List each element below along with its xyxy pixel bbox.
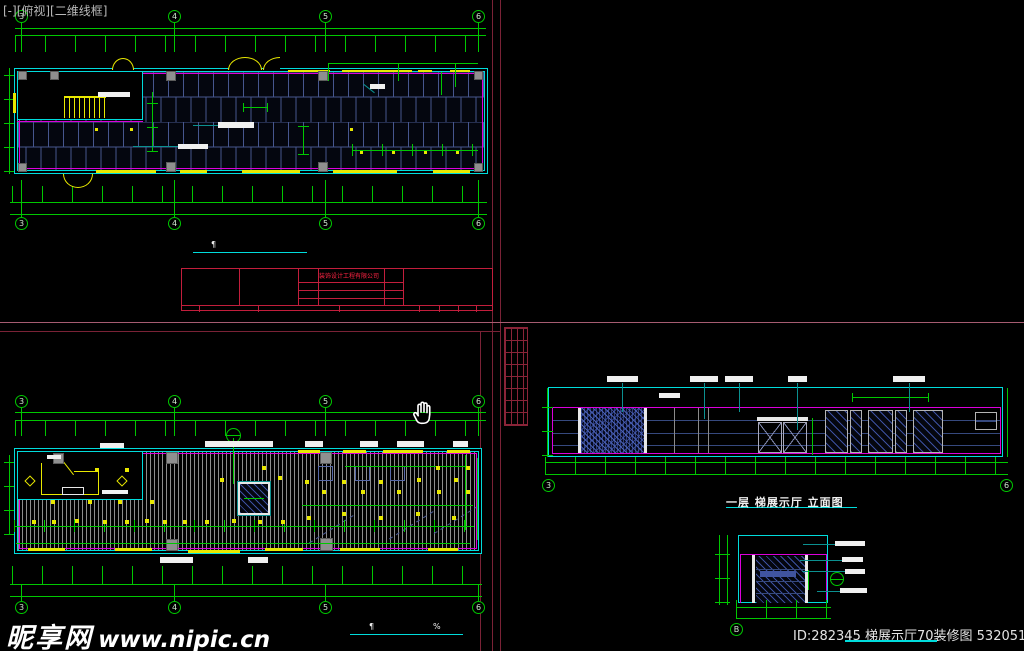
ceiling-light — [466, 466, 470, 470]
door-arc — [263, 57, 280, 70]
section-drawing — [738, 535, 828, 603]
dim — [10, 202, 487, 203]
ceiling-light — [163, 520, 167, 524]
grid-bubble: 5 — [319, 10, 332, 23]
sheet-border-vertical-2 — [500, 0, 501, 651]
ceiling-light — [75, 519, 79, 523]
ceiling-light — [232, 519, 236, 523]
ceiling-light — [281, 520, 285, 524]
fixture-dot — [360, 151, 363, 154]
storefront-strip — [265, 548, 303, 551]
index-line — [830, 579, 844, 580]
dim — [302, 505, 473, 506]
vent-fixture — [355, 466, 370, 481]
ceiling-light — [145, 519, 149, 523]
dim — [736, 618, 831, 619]
elevation-title: 一层 梯展示厅 立面图 — [726, 494, 844, 510]
fixture-dot — [95, 128, 98, 131]
dim — [16, 543, 470, 544]
dim — [398, 63, 399, 81]
storefront-strip — [450, 70, 470, 72]
glazed-door — [758, 422, 782, 453]
grid-bubble: 4 — [168, 601, 181, 614]
dim — [303, 126, 304, 154]
dim — [928, 393, 929, 402]
red-grid-structure — [504, 327, 528, 426]
panel-frame — [644, 408, 647, 453]
display-cabinet — [868, 410, 893, 453]
ceiling-light — [150, 500, 154, 504]
column — [166, 539, 178, 551]
dim — [852, 393, 853, 402]
storefront-strip — [340, 548, 380, 551]
storefront-strip — [383, 450, 423, 453]
dim — [455, 63, 456, 87]
column — [166, 71, 176, 81]
dim — [441, 72, 442, 95]
text-label-bar — [218, 122, 254, 128]
ceiling-light — [88, 500, 92, 504]
dim — [298, 154, 309, 155]
fixture-dot — [424, 151, 427, 154]
storefront-strip — [447, 450, 470, 453]
text-label-bar — [893, 376, 925, 382]
ceiling-light — [262, 466, 266, 470]
dim-ticks — [12, 566, 482, 584]
grid-bubble: 6 — [472, 395, 485, 408]
column — [50, 71, 59, 80]
elevation-grid-bubble-left: 3 — [542, 479, 555, 492]
grid-bubble: 5 — [319, 601, 332, 614]
column — [320, 452, 332, 464]
dim — [10, 584, 482, 585]
stair-symbol — [64, 96, 106, 118]
dim-ticks — [542, 390, 553, 456]
vent-fixture — [390, 466, 405, 481]
door-arc — [245, 57, 262, 70]
display-cabinet — [825, 410, 848, 453]
grid-bubble: 3 — [15, 601, 28, 614]
display-cabinet — [850, 410, 862, 453]
column — [474, 163, 483, 172]
display-cabinet — [895, 410, 907, 453]
title-block: 装饰设计工程有限公司 — [181, 268, 493, 311]
ceiling-light — [436, 466, 440, 470]
dim — [243, 107, 267, 108]
panel-frame — [578, 408, 581, 453]
panel-frame — [752, 555, 755, 603]
section-wall — [826, 554, 827, 603]
dim-ticks — [736, 600, 831, 618]
scale-mark: % — [433, 622, 441, 631]
storefront-strip — [333, 170, 397, 173]
storefront-strip — [418, 70, 432, 72]
dim — [477, 458, 478, 540]
ceiling-light — [322, 490, 326, 494]
scale-bar — [193, 252, 307, 253]
label-box — [62, 487, 84, 495]
dim-ticks — [14, 520, 474, 532]
storefront-strip — [180, 170, 207, 173]
ceiling-light — [220, 478, 224, 482]
text-label-bar — [305, 441, 323, 447]
panel-divider — [674, 408, 675, 453]
text-label-bar — [453, 441, 468, 447]
section-wall — [740, 554, 741, 603]
sheet-border-horizontal-2 — [0, 331, 501, 332]
dim — [812, 418, 813, 455]
ceiling-light — [118, 500, 122, 504]
leader-line — [133, 146, 179, 147]
dim — [10, 214, 487, 215]
text-label-bar — [788, 376, 807, 382]
plan-top-dim-ticks — [15, 35, 486, 52]
ceiling-light — [416, 512, 420, 516]
grid-bubble: 4 — [168, 217, 181, 230]
light-diamond — [116, 475, 127, 486]
dim — [545, 474, 1008, 475]
column — [318, 71, 328, 81]
grid-bubble: 5 — [319, 217, 332, 230]
dim — [267, 103, 268, 112]
text-label-bar — [370, 84, 385, 89]
ceiling-light — [342, 512, 346, 516]
id-underline — [845, 640, 937, 642]
window-strip-left — [13, 93, 16, 113]
ceiling-light — [205, 520, 209, 524]
text-label-bar — [160, 557, 193, 563]
site-watermark-name: 昵享网 — [6, 623, 93, 651]
datum-line — [226, 435, 241, 436]
ceiling-light — [417, 478, 421, 482]
column — [18, 163, 27, 172]
title-block-company: 装饰设计工程有限公司 — [319, 271, 383, 280]
text-label-bar — [397, 441, 424, 447]
panel-divider — [708, 408, 709, 453]
text-label-bar — [102, 490, 128, 494]
dim-ticks — [352, 144, 478, 156]
ceiling-light — [397, 490, 401, 494]
fixture-dot — [350, 128, 353, 131]
ceiling-light — [32, 520, 36, 524]
text-label-bar — [659, 393, 680, 398]
pan-hand-cursor — [408, 397, 438, 427]
stair-rail — [64, 96, 65, 118]
viewport-controls[interactable]: [-][俯视][二维线框] — [3, 2, 107, 19]
section-grid-bubble: B — [730, 623, 743, 636]
text-label-bar — [835, 541, 865, 546]
ceiling-light — [278, 476, 282, 480]
fixture-dot — [130, 128, 133, 131]
storefront-strip — [428, 548, 458, 551]
door-arc — [228, 57, 245, 70]
dim — [10, 596, 482, 597]
storefront-strip — [342, 70, 412, 72]
ceiling-light — [183, 520, 187, 524]
dim — [808, 570, 809, 590]
dim-ticks — [545, 457, 1008, 474]
text-label-bar — [360, 441, 378, 447]
ceiling-light — [437, 490, 441, 494]
grid-bubble: 4 — [168, 395, 181, 408]
plan-top-dim-line-1 — [15, 28, 486, 29]
storefront-strip — [28, 548, 65, 551]
grid-bubble: 3 — [15, 217, 28, 230]
display-cabinet — [913, 410, 943, 453]
column — [318, 162, 328, 172]
dim-ticks — [147, 94, 158, 152]
ceiling-light — [125, 468, 129, 472]
counter-line — [41, 463, 42, 494]
ceiling-light — [95, 468, 99, 472]
text-label-bar — [840, 588, 867, 593]
text-label-bar — [607, 376, 638, 382]
counter-line — [98, 471, 99, 495]
dim — [328, 63, 329, 81]
ceiling-light — [51, 500, 55, 504]
fixture-dot — [456, 151, 459, 154]
text-label-bar — [100, 443, 124, 448]
ceiling-light — [258, 520, 262, 524]
column — [18, 71, 27, 80]
fixture-dot — [392, 151, 395, 154]
cad-canvas: { "viewport_label": "[-][俯视][二维线框]", "wa… — [0, 0, 1024, 651]
storefront-strip — [188, 550, 240, 553]
column — [320, 538, 333, 551]
storefront-strip — [115, 548, 152, 551]
dim — [298, 126, 309, 127]
grid-bubble: 6 — [472, 10, 485, 23]
vent-fixture — [318, 466, 333, 481]
storefront-strip — [298, 450, 320, 453]
site-watermark: 昵享网 www.nipic.cn — [6, 616, 270, 651]
dim — [545, 462, 1008, 463]
ceiling-light — [379, 516, 383, 520]
ceiling-light — [466, 490, 470, 494]
ceiling-light — [52, 520, 56, 524]
text-label-bar — [690, 376, 718, 382]
door-arc — [112, 58, 123, 70]
text-label-bar — [47, 455, 61, 459]
scale-bar — [350, 634, 463, 635]
text-label-bar — [845, 569, 865, 574]
column — [166, 162, 176, 172]
grid-bubble: 5 — [319, 395, 332, 408]
dim — [736, 607, 831, 608]
door-header — [757, 417, 808, 421]
dim — [345, 466, 470, 467]
ceiling-light — [361, 490, 365, 494]
panel-divider — [698, 408, 699, 453]
dim-ticks — [715, 537, 730, 603]
ceiling-light — [342, 480, 346, 484]
sheet-border-horizontal — [0, 322, 1024, 323]
elevation-grid-bubble-right: 6 — [1000, 479, 1013, 492]
grid-bubble: 6 — [472, 217, 485, 230]
sheet-border-vertical-1 — [492, 0, 493, 651]
grid-bubble: 3 — [15, 395, 28, 408]
text-label-bar — [842, 557, 863, 562]
ornamental-glass-panel — [581, 408, 644, 453]
door-arc — [123, 58, 134, 70]
grid-bubble: 4 — [168, 10, 181, 23]
light-diamond — [24, 475, 35, 486]
wall-panel — [975, 412, 997, 430]
dim — [243, 103, 244, 112]
glazed-door — [783, 422, 807, 453]
storefront-strip — [242, 170, 300, 173]
text-label-bar — [725, 376, 753, 382]
room-wall-magenta — [17, 121, 143, 122]
text-label-bar — [248, 557, 268, 563]
storefront-strip — [433, 170, 470, 173]
dim — [852, 397, 928, 398]
dim — [244, 498, 264, 499]
ceiling-light — [125, 520, 129, 524]
storefront-strip — [96, 170, 156, 173]
text-label-bar — [178, 144, 208, 149]
column — [166, 452, 178, 464]
ceiling-light — [452, 516, 456, 520]
text-label-bar — [205, 441, 273, 447]
ceiling-light — [379, 480, 383, 484]
dim — [1007, 388, 1008, 457]
ceiling-light — [454, 478, 458, 482]
dim-ticks — [12, 186, 486, 203]
ceiling-light — [103, 520, 107, 524]
ceiling-light — [307, 516, 311, 520]
text-label-bar — [98, 92, 130, 97]
leader-line — [193, 125, 219, 126]
ceiling-light — [305, 480, 309, 484]
scale-mark: ¶ — [211, 240, 216, 249]
grid-bubble: 6 — [472, 601, 485, 614]
site-watermark-url: www.nipic.cn — [98, 627, 270, 651]
storefront-strip — [343, 450, 366, 453]
column — [474, 71, 483, 80]
glass-panel — [756, 556, 805, 603]
scale-mark: ¶ — [369, 622, 374, 631]
